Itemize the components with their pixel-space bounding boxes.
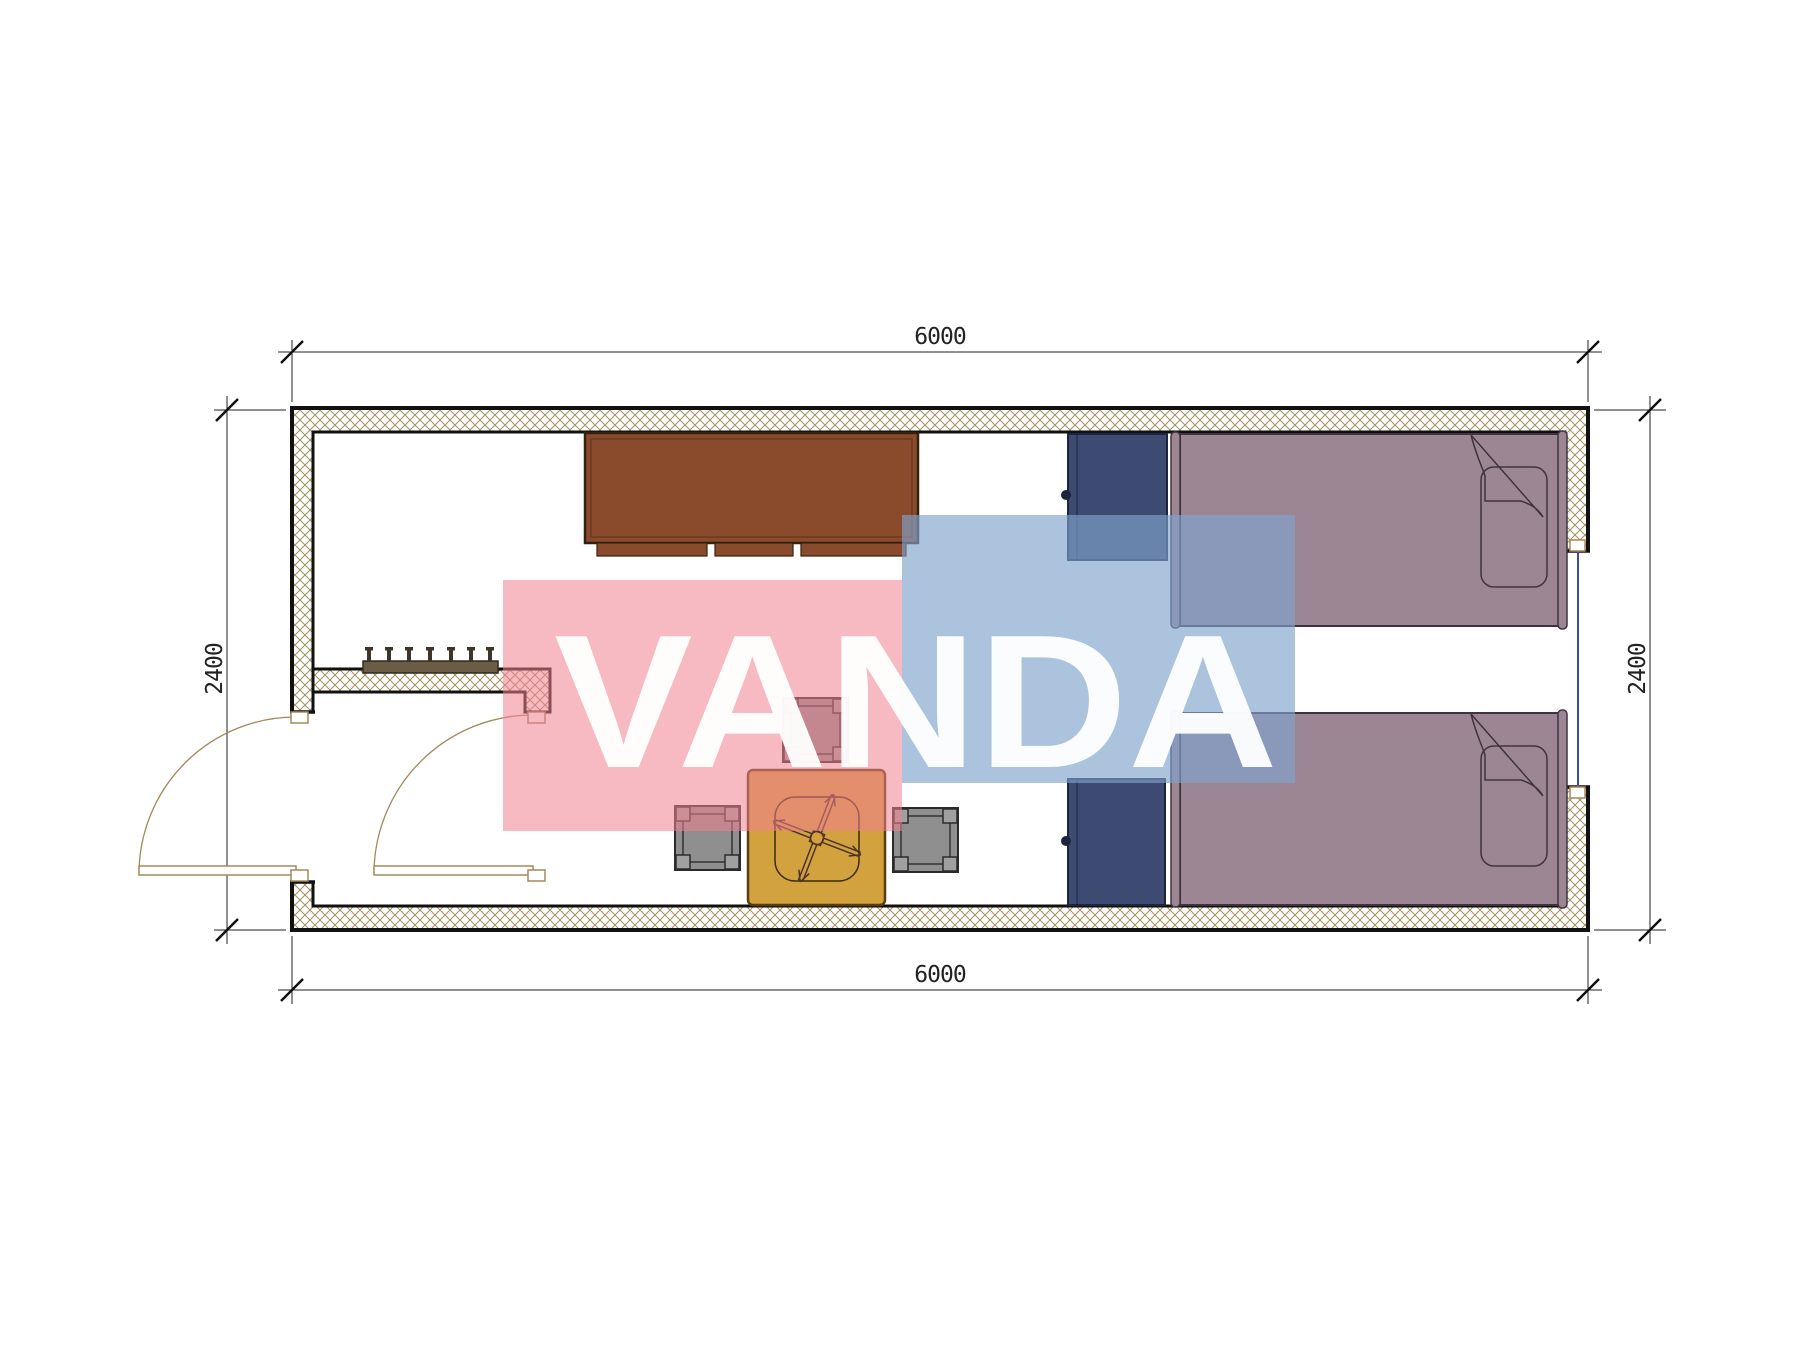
dimension-label-top: 6000 bbox=[914, 324, 966, 350]
door-leaf bbox=[139, 866, 296, 875]
watermark-text: VANDA bbox=[554, 596, 1278, 808]
entry-door bbox=[139, 712, 308, 881]
cabinet bbox=[585, 433, 918, 556]
door-swing-arc bbox=[139, 717, 296, 874]
stool-right bbox=[893, 808, 958, 872]
wardrobe-knob bbox=[1061, 490, 1071, 500]
dimension-bottom: 6000 bbox=[278, 936, 1602, 1004]
floor-plan-screenshot: 6000 6000 2400 2400 bbox=[0, 0, 1800, 1350]
floor-plan-drawing: 6000 6000 2400 2400 bbox=[0, 0, 1800, 1350]
dimension-left: 2400 bbox=[202, 396, 286, 944]
door-jamb bbox=[291, 712, 308, 723]
dimension-top: 6000 bbox=[278, 324, 1602, 402]
window-frame-bottom bbox=[1570, 787, 1585, 798]
dimension-label-right: 2400 bbox=[1625, 643, 1651, 695]
dimension-label-bottom: 6000 bbox=[914, 962, 966, 988]
window-frame-top bbox=[1570, 540, 1585, 551]
entry-door-opening bbox=[286, 712, 318, 882]
dimension-label-left: 2400 bbox=[202, 643, 228, 695]
bed-headboard bbox=[1558, 710, 1567, 908]
door-jamb bbox=[528, 870, 545, 881]
bed-headboard bbox=[1558, 431, 1567, 629]
door-leaf bbox=[374, 866, 533, 875]
wardrobe-knob bbox=[1061, 836, 1071, 846]
dimension-right: 2400 bbox=[1594, 396, 1666, 944]
cabinet-body bbox=[585, 433, 918, 543]
coat-rack-rail bbox=[363, 661, 498, 673]
door-jamb bbox=[291, 870, 308, 881]
